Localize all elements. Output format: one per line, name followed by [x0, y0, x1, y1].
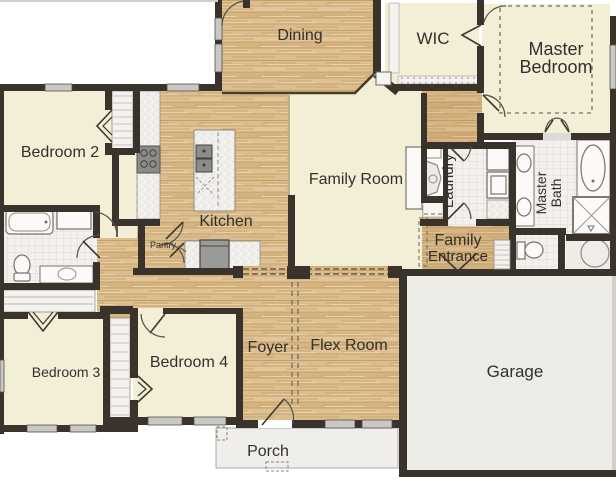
svg-text:Family Room: Family Room: [309, 171, 403, 188]
svg-text:Master: Master: [528, 39, 583, 59]
svg-text:Pantry: Pantry: [150, 240, 177, 250]
svg-text:Laundry: Laundry: [440, 153, 457, 208]
svg-text:Foyer: Foyer: [248, 339, 290, 356]
svg-text:Kitchen: Kitchen: [199, 213, 252, 230]
svg-text:Bedroom 2: Bedroom 2: [21, 144, 99, 161]
svg-text:Entrance: Entrance: [428, 248, 488, 265]
svg-text:Bedroom 4: Bedroom 4: [150, 354, 228, 371]
svg-text:Dining: Dining: [277, 27, 322, 44]
svg-text:Bedroom 3: Bedroom 3: [32, 364, 101, 380]
svg-text:Porch: Porch: [247, 443, 289, 460]
svg-text:Garage: Garage: [487, 362, 544, 381]
svg-text:WIC: WIC: [416, 29, 449, 48]
svg-text:Bedroom: Bedroom: [519, 57, 592, 77]
svg-text:Bath: Bath: [548, 179, 564, 208]
svg-text:Flex Room: Flex Room: [310, 337, 387, 354]
svg-text:Master: Master: [533, 171, 549, 214]
svg-text:Family: Family: [434, 232, 481, 249]
